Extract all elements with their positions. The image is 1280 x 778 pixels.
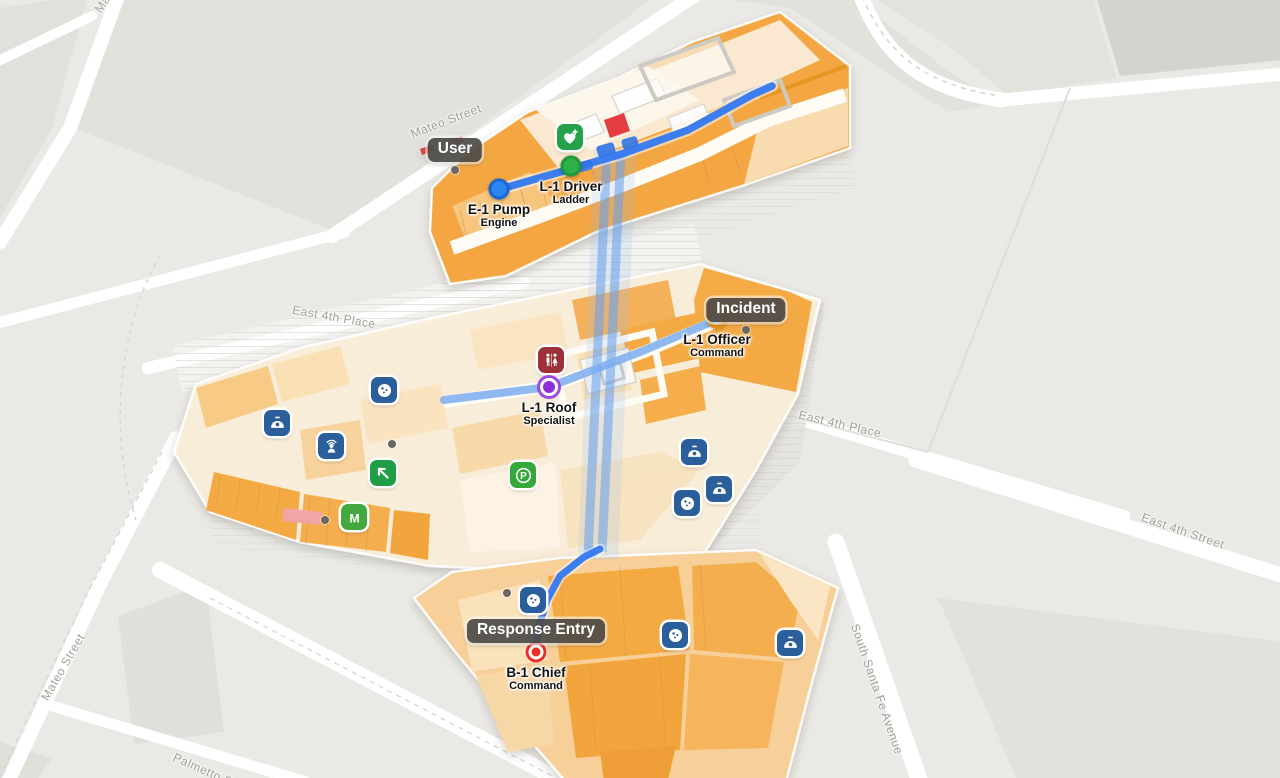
street-label-palmetto-street: Palmetto Street: [171, 750, 259, 778]
unit-marker-l1-roof[interactable]: [540, 378, 558, 396]
map-canvas[interactable]: Mateo StreetMateo StreetMateo StreetEast…: [0, 0, 1280, 778]
dome-icon[interactable]: [264, 410, 290, 436]
street-label-south-santa-fe-avenue: South Santa Fe Avenue: [848, 622, 906, 756]
unit-label-l1-officer: L-1 OfficerCommand: [683, 332, 751, 359]
cookie-icon[interactable]: [662, 622, 688, 648]
unit-marker-e1-pump[interactable]: [489, 179, 510, 200]
map-dot: [321, 516, 329, 524]
unit-label-b1-chief: B-1 ChiefCommand: [506, 665, 565, 692]
unit-marker-b1-chief[interactable]: [529, 645, 544, 660]
unit-callsign: L-1 Driver: [539, 179, 602, 194]
unit-callsign: B-1 Chief: [506, 665, 565, 680]
callout-incident[interactable]: Incident: [706, 298, 785, 322]
unit-callsign: E-1 Pump: [468, 202, 530, 217]
parking-icon[interactable]: P: [510, 462, 536, 488]
dome-icon[interactable]: [777, 630, 803, 656]
unit-label-l1-roof: L-1 RoofSpecialist: [522, 400, 577, 427]
map-dot: [451, 166, 459, 174]
cookie-icon[interactable]: [371, 377, 397, 403]
map-overlay: Mateo StreetMateo StreetMateo StreetEast…: [0, 0, 1280, 778]
unit-role: Engine: [468, 217, 530, 229]
svg-text:M: M: [349, 511, 359, 525]
cookie-icon[interactable]: [674, 490, 700, 516]
street-label-mateo-street: Mateo Street: [38, 631, 87, 703]
unit-marker-l1-driver[interactable]: [561, 156, 582, 177]
unit-label-l1-driver: L-1 DriverLadder: [539, 179, 602, 206]
callout-user[interactable]: User: [428, 138, 482, 162]
callout-response-entry[interactable]: Response Entry: [467, 619, 605, 643]
street-label-mateo-street: Mateo Street: [92, 0, 144, 15]
unit-callsign: L-1 Officer: [683, 332, 751, 347]
metro-icon[interactable]: M: [341, 504, 367, 530]
map-dot: [388, 440, 396, 448]
dome-icon[interactable]: [706, 476, 732, 502]
dome-icon[interactable]: [681, 439, 707, 465]
unit-role: Ladder: [539, 194, 602, 206]
street-label-east-4th-place: East 4th Place: [797, 408, 882, 441]
karaoke-icon[interactable]: [318, 433, 344, 459]
street-label-mateo-street: Mateo Street: [409, 101, 484, 141]
first-aid-icon[interactable]: [557, 124, 583, 150]
unit-role: Specialist: [522, 415, 577, 427]
restroom-icon[interactable]: [538, 347, 564, 373]
street-label-east-4th-street: East 4th Street: [1140, 510, 1227, 552]
exit-arrow-icon[interactable]: [370, 460, 396, 486]
unit-role: Command: [506, 680, 565, 692]
svg-text:P: P: [520, 471, 527, 482]
cookie-icon[interactable]: [520, 587, 546, 613]
unit-label-e1-pump: E-1 PumpEngine: [468, 202, 530, 229]
unit-role: Command: [683, 347, 751, 359]
unit-callsign: L-1 Roof: [522, 400, 577, 415]
street-label-east-4th-place: East 4th Place: [291, 303, 377, 331]
map-dot: [503, 589, 511, 597]
